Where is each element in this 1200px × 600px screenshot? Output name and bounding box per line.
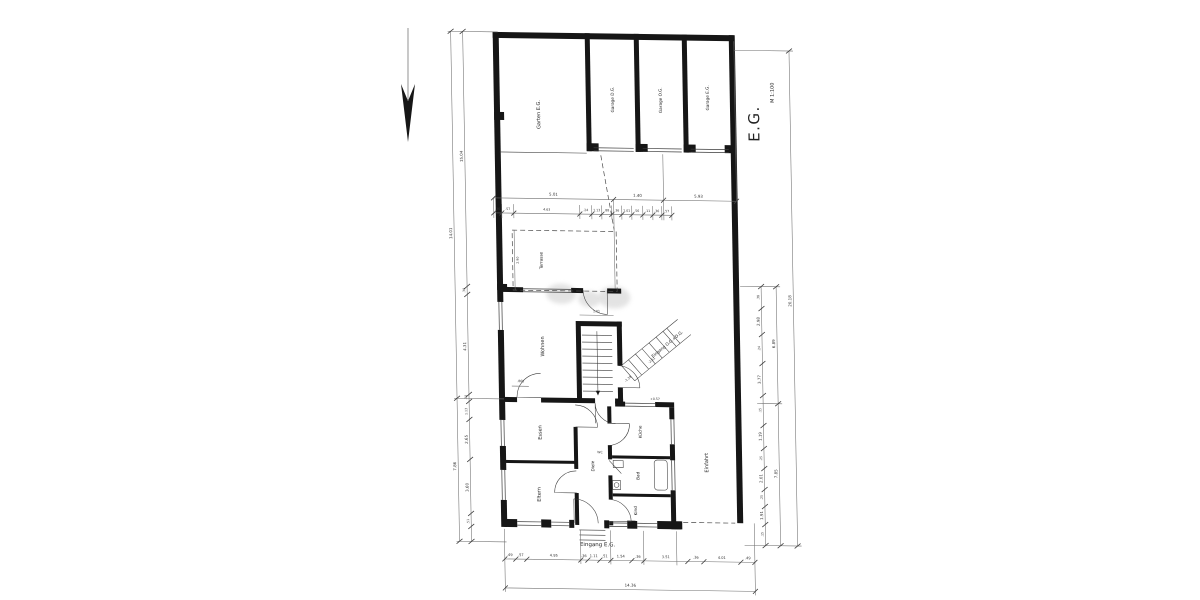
svg-text:.57: .57: [505, 207, 510, 211]
svg-text:.51: .51: [466, 519, 470, 524]
svg-text:.38: .38: [462, 288, 466, 293]
svg-text:1.01: 1.01: [593, 309, 600, 313]
svg-text:4.01: 4.01: [718, 556, 726, 560]
svg-text:.25: .25: [759, 456, 763, 461]
svg-text:.36: .36: [693, 556, 699, 560]
svg-text:.36: .36: [654, 209, 659, 213]
svg-text:.51: .51: [602, 554, 608, 558]
svg-text:.36: .36: [581, 554, 587, 558]
svg-text:.57: .57: [664, 209, 669, 213]
scale-label: M 1:100: [770, 83, 776, 103]
svg-text:3.51: 3.51: [662, 555, 670, 559]
svg-text:15.04: 15.04: [459, 150, 464, 162]
svg-text:5.01: 5.01: [549, 192, 558, 197]
svg-text:4.31: 4.31: [462, 341, 467, 350]
room-label-kind: Kind: [633, 506, 638, 516]
room-label-einfahrt: Einfahrt: [704, 453, 710, 473]
svg-text:.24: .24: [583, 208, 588, 212]
svg-text:.56: .56: [634, 209, 639, 213]
svg-text:.25: .25: [760, 495, 764, 500]
svg-text:14.36: 14.36: [625, 583, 637, 588]
svg-text:1.13: 1.13: [464, 408, 468, 415]
room-label-bad: Bad: [635, 471, 640, 480]
svg-text:1.19: 1.19: [758, 432, 763, 441]
svg-text:1.91: 1.91: [759, 511, 764, 520]
svg-text:.30: .30: [464, 395, 468, 400]
svg-text:1.54: 1.54: [617, 554, 626, 558]
room-label-terrasse: Terrasse: [538, 251, 543, 270]
svg-text:.36: .36: [635, 555, 641, 559]
svg-text:.865: .865: [517, 379, 524, 383]
svg-text:1.13: 1.13: [593, 208, 600, 212]
svg-text:.36: .36: [614, 209, 619, 213]
indoor-stairs: [582, 331, 613, 395]
svg-text:1.01: 1.01: [623, 209, 630, 213]
house-walls: [500, 287, 676, 529]
room-label-kueche: Küche: [638, 425, 643, 438]
svg-text:.11: .11: [645, 209, 650, 213]
svg-text:3.77: 3.77: [757, 375, 762, 384]
room-label-garage-mid: Garage O.G.: [658, 87, 663, 113]
svg-text:2.01: 2.01: [758, 474, 763, 483]
svg-text:1.40: 1.40: [633, 193, 642, 198]
north-arrow-icon: [401, 28, 415, 142]
level-mark-1: -1.38: [624, 375, 633, 383]
svg-text:5.93: 5.93: [694, 194, 703, 199]
room-label-essen: Essen: [538, 425, 544, 440]
svg-text:20.18: 20.18: [787, 295, 792, 307]
svg-text:.49: .49: [507, 553, 513, 557]
room-label-diele: Diele: [590, 460, 595, 471]
svg-text:4.95: 4.95: [550, 554, 558, 558]
room-label-garage-left: Garage D.G.: [610, 87, 615, 113]
level-mark-3: +0.57: [650, 397, 660, 401]
svg-text:7.85: 7.85: [773, 469, 778, 478]
entrance-label-eg: Eingang E.G.: [580, 542, 616, 548]
room-label-eltern: Eltern: [537, 487, 543, 502]
svg-text:.15: .15: [760, 532, 764, 537]
floor-title: E.G.: [745, 105, 764, 142]
svg-text:.88: .88: [604, 208, 609, 212]
svg-text:.24: .24: [757, 346, 761, 351]
svg-text:2.65: 2.65: [464, 434, 469, 443]
svg-text:14.01: 14.01: [448, 227, 453, 239]
floor-plan-page: Garten E.G. Garage D.G. Garage O.G. Gara…: [0, 0, 1200, 600]
svg-text:.15: .15: [758, 408, 762, 413]
svg-text:6.89: 6.89: [771, 339, 776, 348]
room-label-garten: Garten E.G.: [536, 100, 543, 129]
entrance-steps: [579, 530, 605, 540]
room-label-wohnen: Wohnen: [540, 336, 546, 356]
svg-text:.36: .36: [495, 207, 500, 211]
svg-text:3.60: 3.60: [465, 482, 470, 491]
svg-text:4.63: 4.63: [543, 208, 550, 212]
floor-plan-drawing: Garten E.G. Garage D.G. Garage O.G. Gara…: [0, 0, 1200, 600]
svg-text:1.11: 1.11: [590, 554, 598, 558]
svg-text:.57: .57: [518, 553, 524, 557]
svg-text:7.86: 7.86: [452, 461, 457, 470]
room-label-wc: WC: [597, 450, 603, 454]
room-label-garage-right: Garage E.G.: [705, 85, 710, 110]
svg-text:.38: .38: [756, 295, 760, 300]
svg-text:.49: .49: [745, 556, 751, 560]
svg-text:2.98: 2.98: [756, 317, 761, 326]
svg-text:2.90: 2.90: [516, 257, 520, 264]
